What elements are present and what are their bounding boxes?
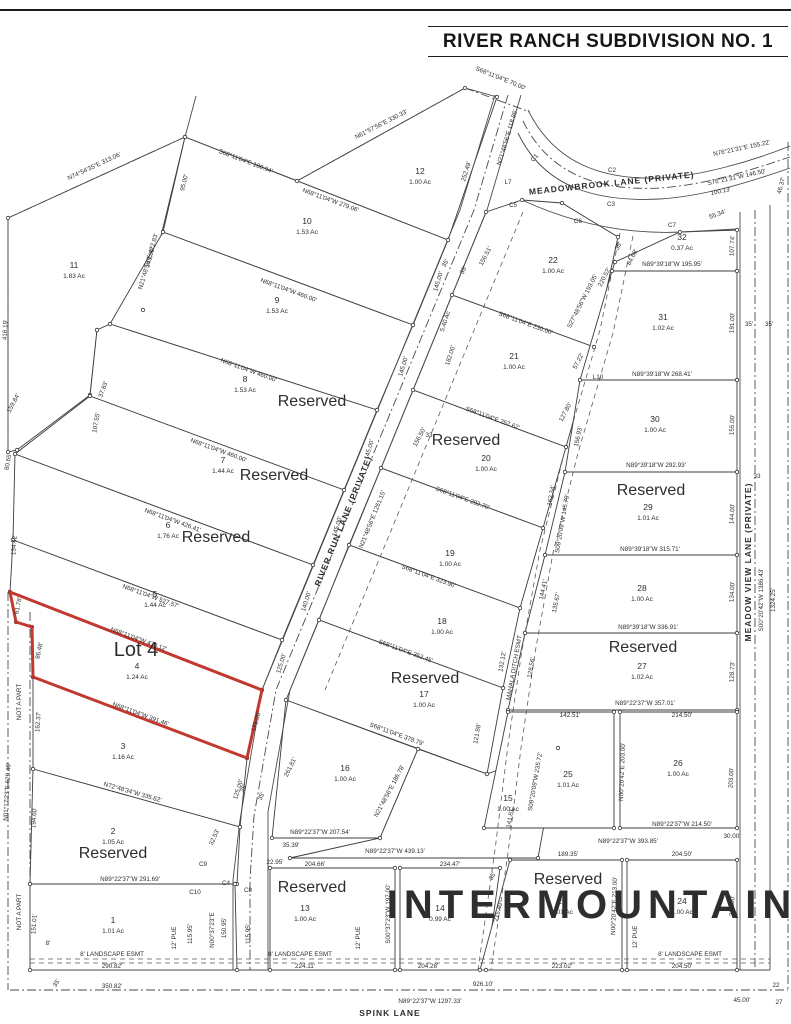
bearing-label: 150.95' bbox=[221, 918, 228, 938]
survey-monument-icon bbox=[416, 747, 419, 750]
bearing-label: 12' PUE bbox=[355, 927, 362, 950]
lot-3-number: 3 bbox=[121, 741, 126, 751]
lot-20-reserved-label: Reserved bbox=[432, 432, 500, 449]
bearing-label: C5 bbox=[509, 202, 518, 209]
lot-27-reserved-label: Reserved bbox=[609, 639, 677, 656]
survey-monument-icon bbox=[735, 858, 738, 861]
bearing-label: L10 bbox=[593, 374, 604, 381]
lot-11-acreage: 1.83 Ac bbox=[63, 273, 85, 280]
survey-monument-icon bbox=[411, 388, 414, 391]
survey-monument-icon bbox=[28, 968, 31, 971]
lot-30-acreage: 1.00 Ac bbox=[644, 427, 666, 434]
bearing-label: 194.60' bbox=[30, 807, 38, 828]
bearing-label: 8' LANDSCAPE ESMT bbox=[268, 951, 332, 958]
lot-27-number: 27 bbox=[637, 661, 647, 671]
survey-monument-icon bbox=[284, 698, 287, 701]
lot-11-number: 11 bbox=[70, 260, 79, 270]
lot-31-acreage: 1.02 Ac bbox=[652, 325, 674, 332]
bearing-label: 144.00' bbox=[728, 504, 736, 525]
lot-20-number: 20 bbox=[481, 453, 491, 463]
boundary-line bbox=[185, 96, 196, 137]
lot-14-number: 14 bbox=[435, 903, 445, 913]
survey-monument-icon bbox=[735, 470, 738, 473]
survey-monument-icon bbox=[592, 345, 595, 348]
survey-monument-icon bbox=[450, 293, 453, 296]
survey-monument-icon bbox=[523, 631, 526, 634]
lot-7-reserved-label: Reserved bbox=[240, 467, 308, 484]
bearing-label: 223.02' bbox=[552, 963, 572, 970]
survey-monument-icon bbox=[347, 543, 350, 546]
lot-29-number: 29 bbox=[643, 502, 653, 512]
bearing-label: 128.73' bbox=[728, 662, 736, 683]
survey-monument-icon bbox=[411, 323, 414, 326]
survey-monument-icon bbox=[31, 767, 34, 770]
lot-23-acreage: 1.01 Ac bbox=[551, 909, 573, 916]
bearing-label: C6 bbox=[574, 218, 583, 225]
lot-28-acreage: 1.00 Ac bbox=[631, 596, 653, 603]
bearing-label: 214.50' bbox=[672, 712, 692, 719]
survey-monument-icon bbox=[398, 968, 401, 971]
survey-monument-icon bbox=[620, 858, 623, 861]
bearing-label: 8' bbox=[46, 940, 51, 947]
bearing-label: 12' PUE bbox=[171, 927, 178, 950]
bearing-label: 86.48' bbox=[34, 642, 44, 660]
survey-monument-icon bbox=[485, 772, 488, 775]
bearing-label: 33 bbox=[753, 473, 761, 480]
survey-monument-icon bbox=[612, 710, 615, 713]
lot-30-boundary bbox=[565, 380, 737, 472]
survey-monument-icon bbox=[495, 95, 498, 98]
bearing-label: 45.00' bbox=[734, 997, 751, 1004]
bearing-label: 61.78' bbox=[13, 597, 23, 615]
survey-monument-icon bbox=[625, 858, 628, 861]
lot-29-acreage: 1.01 Ac bbox=[637, 515, 659, 522]
bearing-label: 191.00' bbox=[728, 313, 736, 334]
lot-13-number: 13 bbox=[300, 903, 310, 913]
lot-19-acreage: 1.00 Ac bbox=[439, 561, 461, 568]
bearing-label: C9 bbox=[199, 861, 208, 868]
bearing-label: C2 bbox=[608, 167, 617, 174]
lot-19-number: 19 bbox=[445, 548, 455, 558]
sheet-border-line bbox=[0, 9, 791, 11]
lot-31-number: 31 bbox=[658, 312, 668, 322]
survey-monument-icon bbox=[735, 553, 738, 556]
lot-9-number: 9 bbox=[275, 295, 280, 305]
survey-monument-icon bbox=[317, 618, 320, 621]
lot-7-acreage: 1.44 Ac bbox=[212, 468, 234, 475]
bearing-label: N89°22'37"W 207.54' bbox=[290, 828, 350, 836]
lot-32-number: 32 bbox=[677, 232, 687, 242]
bearing-label: N89°22'37"W 393.85' bbox=[598, 837, 658, 845]
survey-monument-icon bbox=[478, 968, 481, 971]
bearing-label: N00°37'23"E bbox=[208, 912, 216, 948]
lot-22-acreage: 1.00 Ac bbox=[542, 268, 564, 275]
bearing-label: N01°17'23"E 629.46' bbox=[1, 763, 12, 821]
survey-monument-icon bbox=[735, 269, 738, 272]
bearing-label: 204.66' bbox=[305, 861, 325, 868]
survey-monument-icon bbox=[288, 856, 291, 859]
street-name-label: SPINK LANE bbox=[359, 1008, 420, 1018]
survey-monument-icon bbox=[501, 686, 504, 689]
survey-monument-icon bbox=[620, 968, 623, 971]
bearing-label: 350.82' bbox=[102, 983, 122, 990]
survey-monument-icon bbox=[482, 826, 485, 829]
bearing-label: N76°21'31"E 155.22' bbox=[712, 138, 770, 158]
bearing-label: 140.00' bbox=[300, 591, 313, 613]
lot-3-acreage: 1.16 Ac bbox=[112, 754, 134, 761]
survey-monument-icon bbox=[735, 710, 738, 713]
survey-monument-icon bbox=[484, 210, 487, 213]
bearing-label: 134.42' bbox=[10, 534, 18, 555]
bearing-label: 213.00' bbox=[728, 896, 736, 917]
lot-18-acreage: 1.00 Ac bbox=[431, 629, 453, 636]
lot-6-reserved-label: Reserved bbox=[182, 529, 250, 546]
lot-17-number: 17 bbox=[419, 689, 429, 699]
lot-23-number: 23 bbox=[557, 896, 567, 906]
lot-24-number: 24 bbox=[677, 896, 687, 906]
lot-13-acreage: 1.00 Ac bbox=[294, 916, 316, 923]
survey-monument-icon bbox=[463, 86, 466, 89]
bearing-label: 134.00' bbox=[728, 582, 736, 603]
bearing-label: 22.95' bbox=[267, 859, 284, 866]
bearing-label: 145.00' bbox=[397, 356, 410, 378]
bearing-label: 1324.25' bbox=[770, 588, 777, 612]
survey-monument-icon bbox=[268, 968, 271, 971]
survey-monument-icon bbox=[613, 260, 616, 263]
bearing-label: 204.50' bbox=[672, 963, 692, 970]
survey-monument-icon bbox=[446, 238, 449, 241]
bearing-label: L7 bbox=[504, 179, 512, 186]
survey-monument-icon bbox=[268, 866, 271, 869]
bearing-label: N89°39'18"W 268.41' bbox=[632, 370, 692, 378]
survey-monument-icon bbox=[15, 448, 18, 451]
survey-monument-icon bbox=[235, 968, 238, 971]
bearing-label: 35' bbox=[765, 321, 773, 328]
bearing-label: 142.51' bbox=[560, 712, 580, 719]
survey-monument-icon bbox=[233, 882, 236, 885]
lot-22-number: 22 bbox=[548, 255, 558, 265]
bearing-label: 926.10' bbox=[473, 981, 493, 988]
bearing-label: N89°39'18"W 336.91' bbox=[618, 623, 678, 631]
lot-10-acreage: 1.53 Ac bbox=[296, 229, 318, 236]
bearing-label: C8 bbox=[244, 887, 253, 894]
lot-17-acreage: 1.00 Ac bbox=[413, 702, 435, 709]
lot-17-reserved-label: Reserved bbox=[391, 670, 459, 687]
lot-26-boundary bbox=[620, 712, 737, 828]
survey-monument-icon bbox=[484, 968, 487, 971]
lot-8-acreage: 1.53 Ac bbox=[234, 387, 256, 394]
bearing-label: C4 bbox=[222, 880, 231, 887]
lot-8-number: 8 bbox=[243, 374, 248, 384]
survey-monument-icon bbox=[735, 631, 738, 634]
survey-monument-icon bbox=[735, 968, 738, 971]
lot-26-number: 26 bbox=[673, 758, 683, 768]
survey-monument-icon bbox=[141, 308, 144, 311]
survey-monument-icon bbox=[95, 328, 98, 331]
bearing-label: N89°22'37"W 291.69' bbox=[100, 875, 160, 883]
survey-monument-icon bbox=[379, 466, 382, 469]
bearing-label: 155.00' bbox=[728, 415, 736, 436]
survey-monument-icon bbox=[563, 470, 566, 473]
lot-12-number: 12 bbox=[415, 166, 425, 176]
bearing-label: NOT A PART bbox=[16, 894, 23, 931]
bearing-label: S00°37'23"W 197.00' bbox=[384, 884, 392, 943]
survey-monument-icon bbox=[311, 563, 314, 566]
bearing-label: N89°39'18"W 292.93' bbox=[626, 461, 686, 469]
lot-16-acreage: 1.00 Ac bbox=[334, 776, 356, 783]
survey-monument-icon bbox=[556, 746, 559, 749]
bearing-label: 100.13' bbox=[710, 186, 731, 197]
lot-30-number: 30 bbox=[650, 414, 660, 424]
bearing-label: 204.28' bbox=[418, 963, 438, 970]
survey-monument-icon bbox=[560, 201, 563, 204]
lot-26-acreage: 1.00 Ac bbox=[667, 771, 689, 778]
lot-24-acreage: 1.00 Ac bbox=[671, 909, 693, 916]
lot-23-reserved-label: Reserved bbox=[534, 871, 602, 888]
survey-monument-icon bbox=[498, 866, 501, 869]
bearing-label: 22 bbox=[772, 982, 780, 989]
lot-8-reserved-label: Reserved bbox=[278, 393, 346, 410]
bearing-label: 203.00' bbox=[727, 768, 735, 789]
bearing-label: NOT A PART bbox=[16, 684, 23, 721]
survey-monument-icon bbox=[280, 638, 283, 641]
survey-monument-icon bbox=[520, 198, 523, 201]
survey-monument-icon bbox=[270, 836, 273, 839]
title-block: RIVER RANCH SUBDIVISION NO. 1 bbox=[428, 26, 788, 57]
bearing-label: 107.74' bbox=[728, 236, 736, 257]
survey-monument-icon bbox=[393, 968, 396, 971]
survey-monument-icon bbox=[735, 378, 738, 381]
bearing-label: N89°22'37"W 214.50' bbox=[652, 820, 712, 828]
lot-10-number: 10 bbox=[302, 216, 312, 226]
lot-16-number: 16 bbox=[340, 763, 350, 773]
survey-monument-icon bbox=[625, 968, 628, 971]
bearing-label: S68°11'04"E 70.00' bbox=[474, 64, 527, 92]
survey-monument-icon bbox=[616, 235, 619, 238]
survey-monument-icon bbox=[393, 866, 396, 869]
survey-monument-icon bbox=[88, 394, 91, 397]
survey-monument-icon bbox=[108, 322, 111, 325]
survey-monument-icon bbox=[28, 882, 31, 885]
bearing-label: 35' bbox=[52, 978, 62, 989]
survey-monument-icon bbox=[508, 858, 511, 861]
bearing-label: 115.95' bbox=[245, 924, 252, 944]
survey-monument-icon bbox=[13, 452, 16, 455]
plat-map: INTERMOUNTAINLot 4111.83 Ac121.00 Ac101.… bbox=[0, 0, 791, 1024]
lot-25-acreage: 1.01 Ac bbox=[557, 782, 579, 789]
bearing-label: 35.39' bbox=[283, 842, 300, 849]
lot-15-number: 15 bbox=[503, 793, 513, 803]
lot-4-acreage: 1.24 Ac bbox=[126, 674, 148, 681]
survey-monument-icon bbox=[618, 826, 621, 829]
bearing-label: 30.00' bbox=[724, 833, 741, 840]
bearing-label: 12' PUE bbox=[632, 926, 639, 949]
survey-monument-icon bbox=[735, 826, 738, 829]
bearing-label: N21°48'56"E 118.86' bbox=[495, 109, 519, 166]
bearing-label: 234.47' bbox=[440, 861, 460, 868]
bearing-label: N89°39'18"W 315.71' bbox=[620, 545, 680, 553]
bearing-label: 125.00' bbox=[275, 653, 288, 675]
bearing-label: N89°39'18"W 195.95' bbox=[642, 260, 702, 268]
lot-2-reserved-label: Reserved bbox=[79, 845, 147, 862]
lot-1-acreage: 1.01 Ac bbox=[102, 928, 124, 935]
lot-27-acreage: 1.02 Ac bbox=[631, 674, 653, 681]
survey-monument-icon bbox=[735, 228, 738, 231]
page-title: RIVER RANCH SUBDIVISION NO. 1 bbox=[428, 31, 788, 53]
lot-32-acreage: 0.37 Ac bbox=[671, 245, 693, 252]
bearing-label: 35' bbox=[745, 321, 753, 328]
survey-monument-icon bbox=[518, 606, 521, 609]
bearing-label: 27 bbox=[775, 999, 783, 1006]
bearing-label: C10 bbox=[189, 889, 201, 896]
survey-monument-icon bbox=[578, 378, 581, 381]
bearing-label: 33 bbox=[425, 432, 433, 439]
lot-9-acreage: 1.53 Ac bbox=[266, 308, 288, 315]
bearing-label: 115.95' bbox=[187, 924, 194, 944]
bearing-label: C3 bbox=[607, 201, 616, 208]
bearing-label: 224.11' bbox=[295, 963, 315, 970]
survey-monument-icon bbox=[506, 710, 509, 713]
survey-monument-icon bbox=[6, 216, 9, 219]
bearing-label: 35' bbox=[441, 258, 451, 269]
lot-6-acreage: 1.76 Ac bbox=[157, 533, 179, 540]
bearing-label: N89°22'37"W 439.13' bbox=[365, 847, 425, 855]
bearing-label: C7 bbox=[668, 222, 677, 229]
lot-18-number: 18 bbox=[437, 616, 447, 626]
survey-monument-icon bbox=[612, 826, 615, 829]
bearing-label: 55.34' bbox=[708, 208, 726, 220]
bearing-label: 189.35' bbox=[558, 851, 578, 858]
bearing-label: 151.01' bbox=[30, 913, 38, 934]
survey-monument-icon bbox=[161, 230, 164, 233]
survey-monument-icon bbox=[378, 836, 381, 839]
bearing-label: 204.50' bbox=[672, 851, 692, 858]
bearing-label: S00°20'42"W 1386.43' bbox=[757, 569, 765, 632]
bearing-label: 80.65' bbox=[4, 453, 14, 471]
lot-28-number: 28 bbox=[637, 583, 647, 593]
survey-monument-icon bbox=[618, 710, 621, 713]
bearing-label: 290.82' bbox=[102, 963, 122, 970]
bearing-label: 175.00' bbox=[250, 711, 263, 733]
bearing-label: 46.37' bbox=[776, 177, 787, 195]
bearing-label: 416.19' bbox=[2, 320, 10, 341]
lot-14-acreage: 0.99 Ac bbox=[429, 916, 451, 923]
survey-monument-icon bbox=[541, 526, 544, 529]
survey-monument-icon bbox=[375, 408, 378, 411]
lot-25-number: 25 bbox=[563, 769, 573, 779]
street-name-label: MEADOW VIEW LANE (PRIVATE) bbox=[743, 483, 753, 642]
lot-21-number: 21 bbox=[509, 351, 519, 361]
survey-monument-icon bbox=[536, 856, 539, 859]
lot-4-number: 4 bbox=[135, 661, 140, 671]
survey-monument-icon bbox=[238, 825, 241, 828]
bearing-label: 162.37' bbox=[34, 711, 42, 732]
survey-monument-icon bbox=[183, 135, 186, 138]
survey-monument-icon bbox=[398, 866, 401, 869]
bearing-label: N89°22'37"W 357.01' bbox=[615, 699, 675, 707]
survey-monument-icon bbox=[543, 553, 546, 556]
lot-1-number: 1 bbox=[111, 915, 116, 925]
bearing-label: 8' LANDSCAPE ESMT bbox=[80, 951, 144, 958]
bearing-label: 8' LANDSCAPE ESMT bbox=[658, 951, 722, 958]
lot-2-number: 2 bbox=[111, 826, 116, 836]
survey-monument-icon bbox=[564, 445, 567, 448]
lot-12-acreage: 1.00 Ac bbox=[409, 179, 431, 186]
lot-13-reserved-label: Reserved bbox=[278, 879, 346, 896]
survey-monument-icon bbox=[295, 179, 298, 182]
lot-29-reserved-label: Reserved bbox=[617, 482, 685, 499]
plat-page: { "title": "RIVER RANCH SUBDIVISION NO. … bbox=[0, 0, 791, 1024]
lot-21-acreage: 1.00 Ac bbox=[503, 364, 525, 371]
bearing-label: N89°22'37"W 1297.33' bbox=[398, 997, 461, 1005]
lot-20-acreage: 1.00 Ac bbox=[475, 466, 497, 473]
survey-monument-icon bbox=[342, 488, 345, 491]
